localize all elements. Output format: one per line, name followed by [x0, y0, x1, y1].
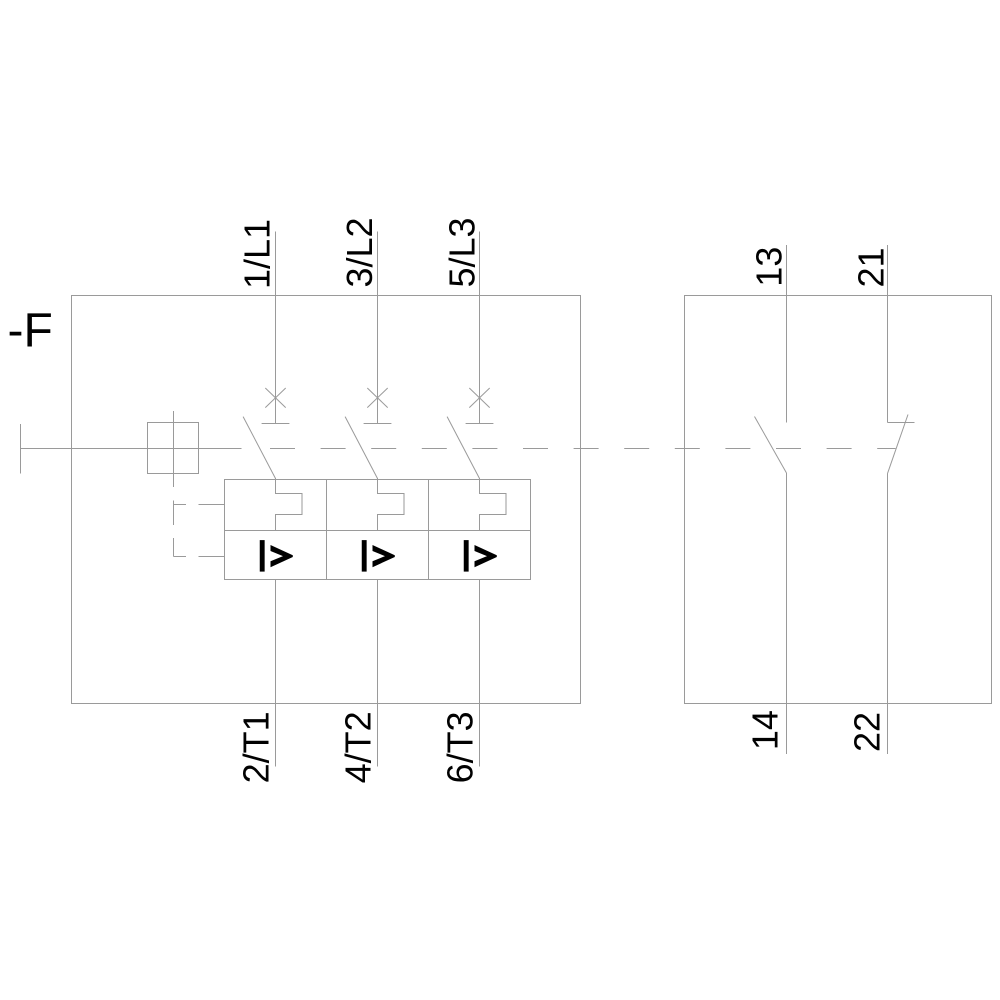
svg-text:3/L2: 3/L2 — [339, 217, 380, 287]
svg-text:4/T2: 4/T2 — [338, 711, 379, 783]
svg-text:6/T3: 6/T3 — [440, 711, 481, 783]
svg-text:5/L3: 5/L3 — [441, 217, 482, 287]
svg-text:13: 13 — [748, 247, 789, 287]
svg-text:14: 14 — [745, 710, 786, 750]
svg-text:22: 22 — [847, 712, 888, 752]
svg-text:-F: -F — [8, 305, 53, 358]
svg-text:2/T1: 2/T1 — [236, 711, 277, 783]
svg-text:1/L1: 1/L1 — [236, 219, 277, 289]
svg-text:21: 21 — [850, 247, 891, 287]
